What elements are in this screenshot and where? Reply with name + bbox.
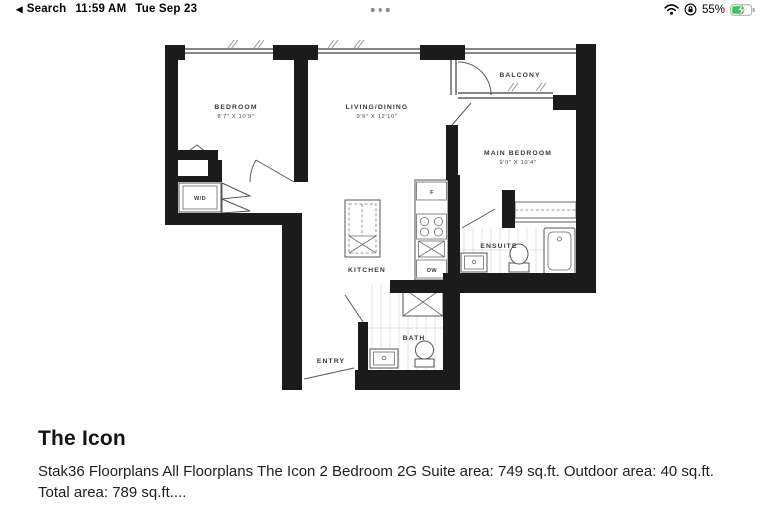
room-label-main-bedroom: MAIN BEDROOM	[484, 150, 552, 157]
room-dims-living-dining: 9'9" X 12'10"	[356, 114, 397, 120]
entry-door	[304, 368, 354, 379]
kitchen-island	[345, 200, 380, 257]
room-label-living-dining: LIVING/DINING	[346, 104, 409, 111]
room-label-bath: BATH	[403, 335, 426, 342]
room-label-washer-dryer: W/D	[194, 196, 206, 202]
washer-dryer-unit	[179, 183, 250, 213]
floorplan-image: BEDROOM 8'7" X 10'5" LIVING/DINING 9'9" …	[158, 32, 618, 392]
bath-toilet	[415, 341, 434, 367]
page-title: The Icon	[38, 427, 744, 451]
room-dims-main-bedroom: 9'0" X 10'4"	[499, 160, 536, 166]
battery-percent: 55%	[702, 4, 725, 16]
listing-details: The Icon Stak36 Floorplans All Floorplan…	[38, 427, 744, 503]
ensuite-bathtub	[544, 228, 575, 274]
time-label: 11:59 AM	[75, 3, 126, 15]
status-bar: ◀ Search 11:59 AM Tue Sep 23 55%	[0, 0, 760, 22]
closet-bifold-door	[222, 183, 250, 199]
main-bedroom-door	[452, 103, 471, 125]
wifi-icon	[664, 4, 679, 15]
multitask-indicator	[371, 8, 390, 12]
status-bar-left: ◀ Search 11:59 AM Tue Sep 23	[16, 3, 197, 15]
appliance-label-fridge: F	[430, 190, 434, 196]
status-bar-right: 55%	[664, 3, 755, 16]
multitask-dot	[386, 8, 390, 12]
ensuite-door	[462, 209, 495, 228]
room-label-kitchen: KITCHEN	[348, 267, 386, 274]
bath-vanity-sink	[370, 349, 398, 368]
main-bedroom-closet	[515, 202, 576, 222]
back-icon: ◀	[16, 4, 23, 15]
room-label-entry: ENTRY	[317, 358, 345, 365]
charging-bolt-icon	[738, 4, 745, 15]
bedroom-door	[250, 160, 294, 182]
page: ◀ Search 11:59 AM Tue Sep 23 55%	[0, 0, 760, 505]
back-to-search-button[interactable]: ◀ Search	[16, 3, 66, 15]
closet-bifold-door	[222, 199, 250, 213]
room-label-balcony: BALCONY	[499, 72, 540, 79]
back-label: Search	[27, 3, 67, 15]
room-label-bedroom: BEDROOM	[214, 104, 257, 111]
room-dims-bedroom: 8'7" X 10'5"	[217, 114, 254, 120]
appliance-label-dishwasher: DW	[427, 268, 437, 274]
multitask-dot	[378, 8, 382, 12]
battery-charging-icon	[730, 4, 755, 16]
date-label: Tue Sep 23	[135, 3, 197, 15]
rotation-lock-icon	[684, 3, 697, 16]
multitask-dot	[371, 8, 375, 12]
balcony-door	[451, 60, 491, 95]
room-label-ensuite: ENSUITE	[480, 243, 517, 250]
bath-door	[345, 295, 363, 322]
ensuite-vanity-sink	[461, 253, 487, 272]
page-description: Stak36 Floorplans All Floorplans The Ico…	[38, 461, 744, 503]
